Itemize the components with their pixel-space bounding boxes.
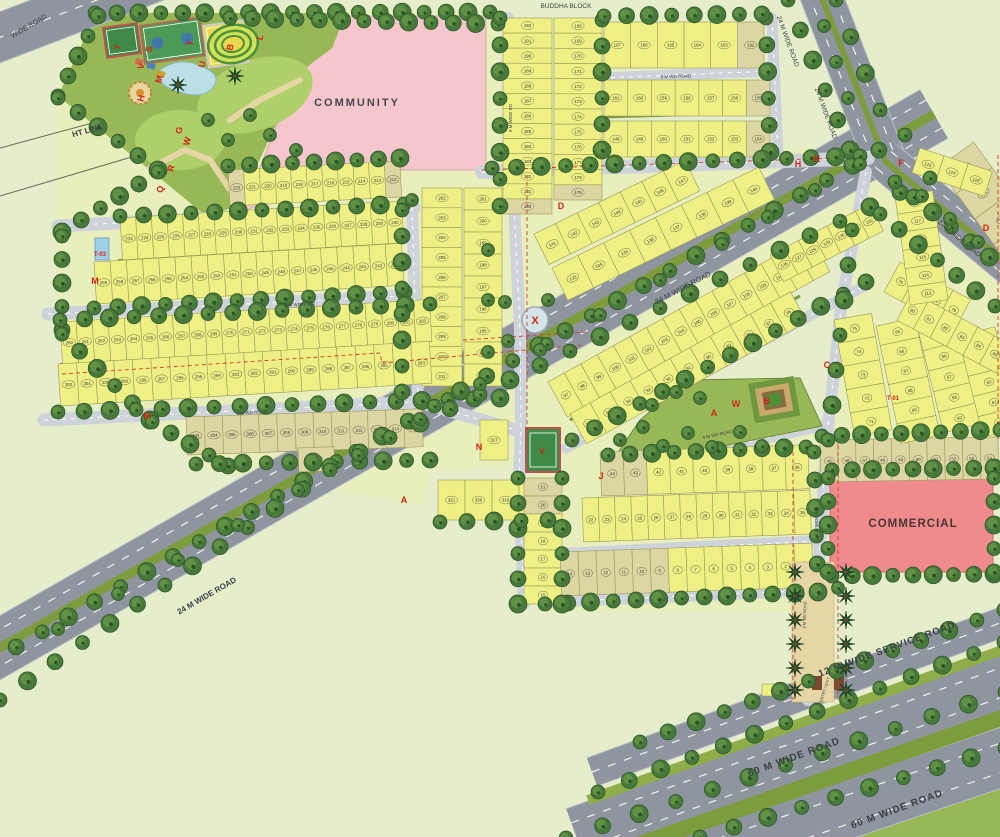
- tree-icon: [255, 203, 269, 217]
- tree-core: [859, 163, 862, 166]
- plot-number: 311: [337, 428, 345, 433]
- tree-core: [109, 622, 113, 626]
- tree-core: [643, 285, 647, 289]
- tree-core: [711, 446, 714, 449]
- tree-core: [723, 711, 726, 714]
- tree-core: [227, 139, 230, 142]
- tree-core: [599, 336, 603, 340]
- tree-core: [824, 89, 827, 92]
- tree-icon: [259, 456, 273, 470]
- tree-core: [265, 404, 269, 408]
- tree-core: [869, 206, 873, 210]
- plot-number: 179: [574, 190, 582, 195]
- tree-core: [695, 721, 699, 725]
- plot-number: 310: [319, 429, 327, 434]
- tree-core: [736, 159, 740, 163]
- palm-tree-icon: [786, 587, 804, 605]
- tree-core: [312, 461, 316, 465]
- tree-icon: [395, 203, 409, 217]
- tree-icon: [163, 425, 179, 441]
- tree-core: [629, 453, 633, 457]
- plot-number: 285: [380, 363, 388, 368]
- tree-core: [779, 690, 783, 694]
- tree-core: [814, 479, 818, 483]
- tree-core: [195, 463, 198, 466]
- tree-core: [662, 445, 665, 448]
- tree-icon: [988, 299, 1000, 313]
- plot-number: 298: [139, 377, 147, 382]
- tree-core: [970, 757, 974, 761]
- tree-icon: [242, 157, 258, 173]
- tree-core: [487, 249, 490, 252]
- tree-core: [761, 445, 764, 448]
- plot-number: 273: [274, 327, 282, 332]
- tree-core: [831, 404, 835, 408]
- tree-icon: [759, 808, 777, 826]
- tree-icon: [70, 104, 86, 120]
- tree-core: [57, 411, 60, 414]
- tree-core: [516, 166, 520, 170]
- tree-core: [96, 367, 100, 371]
- plot-number: 319: [502, 498, 510, 503]
- plot-number: 41: [679, 469, 685, 474]
- plot-number: 172: [574, 84, 582, 89]
- tree-icon: [830, 56, 843, 69]
- tree-core: [517, 502, 521, 506]
- tree-core: [826, 179, 829, 182]
- tree-core: [851, 469, 855, 473]
- plot-number: 115: [919, 254, 927, 260]
- tree-core: [910, 676, 914, 680]
- tree-icon: [886, 568, 900, 582]
- tree-icon: [743, 258, 757, 272]
- tree-icon: [474, 378, 487, 391]
- plot-number: 218: [295, 182, 303, 187]
- plot-number: 18: [541, 539, 546, 544]
- tree-core: [849, 149, 853, 153]
- plot-number: 291: [269, 369, 277, 374]
- tree-core: [182, 12, 186, 16]
- tree-icon: [679, 153, 697, 171]
- tree-icon: [158, 578, 172, 592]
- tree-core: [87, 35, 90, 38]
- tree-core: [198, 541, 201, 544]
- tree-core: [177, 559, 180, 562]
- tree-icon: [485, 161, 499, 175]
- tree-icon: [109, 5, 125, 21]
- tree-icon: [290, 13, 304, 27]
- tree-core: [295, 149, 298, 152]
- plot-number: 163: [720, 43, 728, 48]
- plot-number: 205: [438, 255, 446, 260]
- tree-icon: [482, 244, 495, 257]
- sport-court-Y: [103, 23, 141, 57]
- plot-number: 305: [228, 432, 236, 437]
- tree-core: [341, 19, 345, 23]
- plot-number: 280: [387, 320, 395, 325]
- tree-core: [752, 342, 756, 346]
- tree-icon: [761, 117, 777, 133]
- tree-core: [767, 71, 771, 75]
- tree-core: [827, 571, 831, 575]
- tree-core: [571, 439, 574, 442]
- tree-icon: [406, 194, 419, 207]
- tree-icon: [716, 238, 729, 251]
- tree-icon: [76, 636, 90, 650]
- tree-core: [953, 574, 956, 577]
- tree-core: [695, 254, 699, 258]
- tree-core: [847, 264, 851, 268]
- tree-core: [79, 350, 83, 354]
- tree-core: [487, 299, 490, 302]
- tree-core: [429, 303, 432, 306]
- tree-core: [157, 171, 160, 174]
- tree-icon: [654, 383, 670, 399]
- tree-icon: [947, 462, 961, 476]
- tree-core: [749, 594, 752, 597]
- tree-icon: [243, 503, 259, 519]
- tree-core: [589, 601, 593, 605]
- tree-icon: [222, 134, 235, 147]
- tree-core: [308, 296, 311, 299]
- tree-core: [401, 261, 405, 265]
- plot-number: 171: [574, 69, 582, 74]
- tree-icon: [73, 212, 89, 228]
- tree-icon: [179, 399, 197, 417]
- plot-number: 27: [670, 514, 676, 519]
- tree-core: [841, 434, 845, 438]
- tree-core: [660, 768, 664, 772]
- plot-number: 168: [574, 23, 582, 28]
- tree-core: [41, 631, 44, 634]
- tree-core: [421, 399, 425, 403]
- tree-core: [900, 432, 904, 436]
- tree-core: [932, 211, 936, 215]
- tree-core: [274, 18, 278, 22]
- tree-icon: [896, 771, 910, 785]
- tree-core: [937, 259, 940, 262]
- tree-core: [733, 826, 737, 830]
- tree-icon: [840, 257, 856, 273]
- tree-icon: [290, 144, 303, 157]
- plot-number: 184: [524, 144, 532, 149]
- tree-icon: [934, 425, 948, 439]
- tree-icon: [374, 452, 392, 470]
- plot-number: 178: [574, 175, 582, 180]
- tree-icon: [985, 516, 1000, 534]
- plot-number: 161: [612, 96, 620, 101]
- tree-icon: [491, 143, 509, 161]
- tree-core: [772, 593, 776, 597]
- tree-core: [729, 354, 733, 358]
- plot-number: 34: [784, 510, 790, 515]
- tree-core: [289, 461, 293, 465]
- tree-icon: [229, 202, 247, 220]
- plot-number: 40: [702, 468, 708, 473]
- plot-number: 297: [158, 376, 166, 381]
- tree-core: [395, 400, 399, 404]
- tree-core: [993, 501, 997, 505]
- tree-core: [308, 207, 312, 211]
- tree-icon: [335, 394, 353, 412]
- plot-number: 37: [771, 466, 777, 471]
- tree-core: [561, 553, 564, 556]
- tree-icon: [888, 175, 902, 189]
- tree-core: [509, 379, 513, 383]
- tree-icon: [765, 586, 781, 602]
- tree-icon: [207, 400, 221, 414]
- tree-icon: [514, 514, 528, 528]
- tree-icon: [949, 267, 965, 283]
- palm-trunk: [844, 618, 848, 622]
- tree-icon: [492, 117, 508, 133]
- tree-core: [499, 151, 503, 155]
- palm-trunk: [176, 83, 180, 87]
- tree-icon: [654, 274, 667, 287]
- tree-icon: [400, 453, 414, 467]
- tree-core: [207, 119, 210, 122]
- tree-icon: [151, 308, 167, 324]
- plot-number: 39: [725, 467, 731, 472]
- tree-core: [204, 12, 208, 16]
- plot-number: 114: [922, 272, 930, 278]
- tree-icon: [779, 151, 793, 165]
- tree-core: [659, 279, 662, 282]
- tree-icon: [510, 571, 526, 587]
- tree-icon: [52, 623, 65, 636]
- tree-icon: [69, 47, 87, 65]
- tree-icon: [947, 568, 961, 582]
- tree-core: [170, 432, 174, 436]
- tree-icon: [660, 724, 676, 740]
- plot-number: 279: [371, 321, 379, 326]
- plot-number: 176: [574, 145, 582, 150]
- tree-core: [419, 418, 422, 421]
- plot-number: 243: [358, 264, 366, 269]
- tree-core: [399, 157, 403, 161]
- tree-core: [499, 71, 503, 75]
- tree-core: [108, 317, 112, 321]
- tree-core: [224, 525, 228, 529]
- tree-icon: [130, 148, 146, 164]
- tree-icon: [905, 461, 921, 477]
- tree-core: [313, 161, 317, 165]
- tree-core: [892, 468, 895, 471]
- tree-core: [813, 451, 816, 454]
- tree-icon: [278, 201, 294, 217]
- tree-icon: [506, 354, 520, 368]
- tree-core: [561, 527, 565, 531]
- tree-icon: [706, 154, 720, 168]
- tree-icon: [357, 14, 371, 28]
- tree-icon: [858, 274, 874, 290]
- tree-core: [602, 825, 606, 829]
- plot-number: 183: [524, 159, 532, 164]
- tree-core: [835, 61, 838, 64]
- plot-number: 182: [524, 174, 532, 179]
- plot-number: 250: [245, 271, 253, 276]
- tree-icon: [349, 198, 365, 214]
- tree-icon: [59, 608, 77, 626]
- tree-icon: [77, 311, 93, 327]
- tree-icon: [452, 382, 470, 400]
- tree-icon: [633, 397, 647, 411]
- plot-number: 266: [162, 334, 170, 339]
- tree-icon: [427, 399, 441, 413]
- tree-core: [711, 788, 715, 792]
- tree-icon: [211, 456, 227, 472]
- tree-core: [669, 270, 672, 273]
- tree-core: [517, 578, 521, 582]
- tree-icon: [987, 542, 1000, 556]
- tree-icon: [538, 597, 552, 611]
- plot-number: 304: [210, 433, 218, 438]
- tree-icon: [532, 157, 550, 175]
- tree-core: [208, 454, 211, 457]
- tree-icon: [987, 471, 1000, 485]
- tree-core: [880, 433, 883, 436]
- tree-icon: [88, 359, 106, 377]
- block-letter-A: A: [401, 495, 408, 505]
- tree-core: [292, 162, 295, 165]
- tree-core: [270, 163, 274, 167]
- tree-core: [850, 36, 854, 40]
- tree-core: [401, 287, 404, 290]
- tree-core: [827, 548, 830, 551]
- plot-number: 48: [880, 458, 886, 463]
- tree-core: [871, 574, 875, 578]
- plot-number: 228: [203, 231, 211, 236]
- tree-core: [635, 599, 639, 603]
- tree-icon: [189, 457, 203, 471]
- tree-icon: [207, 204, 223, 220]
- tree-icon: [761, 91, 775, 105]
- tree-icon: [393, 331, 411, 349]
- tree-icon: [893, 425, 909, 441]
- tree-core: [452, 22, 456, 26]
- tree-core: [334, 160, 338, 164]
- tree-core: [868, 786, 872, 790]
- plot-number: 290: [288, 368, 296, 373]
- tree-core: [265, 462, 268, 465]
- tree-icon: [967, 647, 981, 661]
- tree-core: [439, 521, 442, 524]
- tree-core: [912, 468, 916, 472]
- tree-icon: [93, 201, 107, 215]
- tree-icon: [650, 590, 668, 608]
- tree-icon: [818, 20, 831, 33]
- tree-icon: [352, 449, 365, 462]
- tree-core: [284, 297, 288, 301]
- tree-core: [629, 321, 633, 325]
- tree-core: [467, 11, 471, 15]
- plot-number: 12: [603, 570, 609, 575]
- tree-core: [256, 310, 260, 314]
- tree-icon: [687, 246, 705, 264]
- tree-core: [651, 404, 654, 407]
- tree-core: [827, 501, 831, 505]
- plot-number: 170: [574, 54, 582, 59]
- plot-number: 190: [524, 53, 532, 58]
- plot-number: 186: [524, 114, 532, 119]
- tree-core: [642, 426, 645, 429]
- tree-core: [218, 463, 222, 467]
- tree-core: [385, 21, 389, 25]
- palm-tree-icon: [786, 681, 804, 699]
- tree-icon: [909, 236, 927, 254]
- tree-icon: [828, 362, 844, 378]
- tree-icon: [722, 347, 738, 363]
- tree-icon: [502, 335, 515, 348]
- tree-core: [356, 205, 360, 209]
- tree-icon: [482, 346, 495, 359]
- palm-tree-icon: [837, 563, 855, 581]
- tree-icon: [898, 128, 912, 142]
- tree-icon: [111, 134, 125, 148]
- tree-core: [401, 313, 405, 317]
- plot-number: 52: [951, 456, 957, 461]
- tree-icon: [101, 614, 119, 632]
- tree-icon: [820, 494, 836, 510]
- plot-number: 26: [653, 515, 659, 520]
- tree-core: [786, 158, 789, 161]
- plot-block-plot-317: 317: [480, 420, 508, 460]
- plot-number: 113: [924, 290, 932, 296]
- tree-core: [979, 430, 983, 434]
- block-letter-H: H: [795, 159, 802, 169]
- tree-icon: [492, 198, 508, 214]
- tree-icon: [732, 7, 746, 21]
- tree-core: [504, 301, 507, 304]
- tree-core: [812, 59, 816, 63]
- tree-core: [54, 661, 58, 665]
- plot-number: 203: [438, 215, 446, 220]
- plot-number: 173: [574, 99, 582, 104]
- tree-core: [835, 369, 839, 373]
- tree-icon: [35, 625, 49, 639]
- tree-icon: [903, 669, 919, 685]
- plot-number: 225: [157, 234, 165, 239]
- plot-number: 229: [219, 230, 227, 235]
- tree-icon: [608, 292, 626, 310]
- tree-core: [429, 459, 433, 463]
- tree-core: [977, 241, 980, 244]
- tree-core: [973, 467, 977, 471]
- tree-icon: [184, 206, 198, 220]
- tree-icon: [850, 732, 868, 750]
- tree-icon: [300, 199, 318, 217]
- tree-core: [291, 404, 294, 407]
- tree-core: [379, 292, 382, 295]
- tree-core: [499, 178, 502, 181]
- tree-core: [517, 527, 521, 531]
- plot-number: 294: [213, 373, 221, 378]
- block-letter-M: M: [91, 276, 99, 286]
- plot-number: 302: [65, 382, 73, 387]
- tree-icon: [532, 357, 548, 373]
- palm-tree-icon: [226, 67, 244, 85]
- tree-core: [681, 597, 684, 600]
- tree-icon: [792, 22, 808, 38]
- plot-number: 308: [283, 430, 291, 435]
- plot-number: 201: [479, 197, 487, 202]
- block-letter-A: A: [711, 408, 718, 418]
- tree-core: [879, 213, 882, 216]
- tree-core: [616, 300, 620, 304]
- tree-core: [561, 578, 565, 582]
- sport-court-S: [140, 18, 205, 64]
- tree-icon: [759, 37, 775, 53]
